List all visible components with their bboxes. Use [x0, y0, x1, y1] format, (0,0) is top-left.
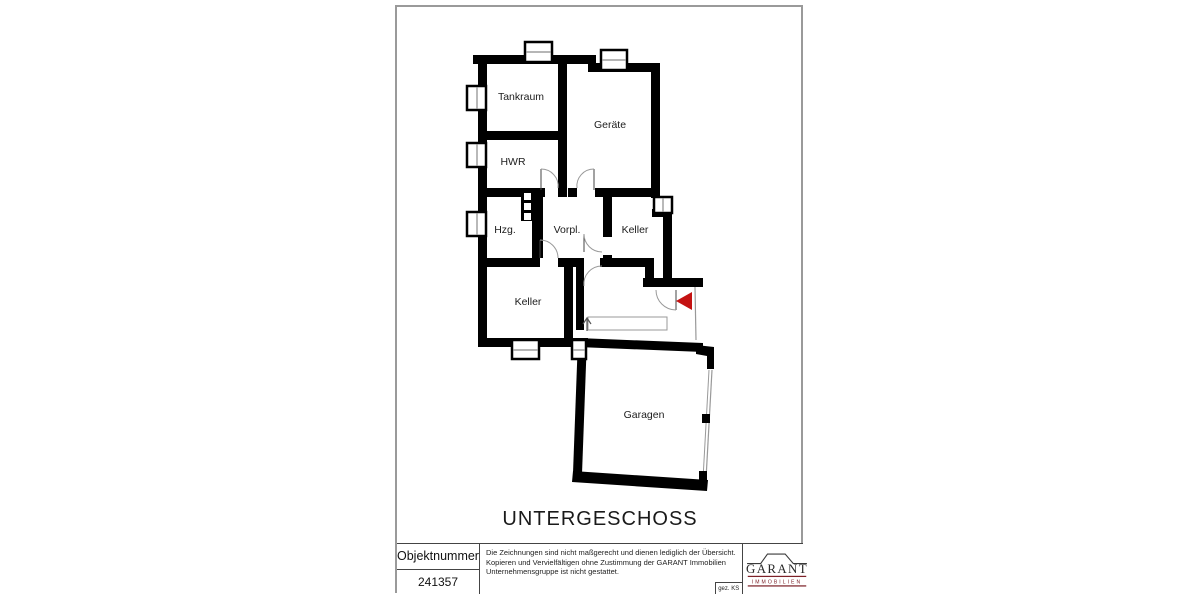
room-label-hwr: HWR: [500, 156, 525, 168]
room-label-tankraum: Tankraum: [498, 91, 544, 103]
room-label-keller-bottom: Keller: [515, 296, 542, 308]
garage-door-line: [706, 370, 712, 479]
title-block: Objektnummer 241357 Die Zeichnungen sind…: [397, 543, 803, 594]
logo-box: GARANT IMMOBILIEN: [743, 544, 811, 594]
disclaimer-line: Unternehmensgruppe ist nicht gestattet.: [486, 567, 736, 577]
disclaimer-box: Die Zeichnungen sind nicht maßgerecht un…: [480, 544, 743, 594]
object-number-label: Objektnummer: [397, 544, 479, 570]
chimney-symbol: [521, 190, 533, 221]
entrance-arrow-icon: [676, 292, 692, 310]
page-title: UNTERGESCHOSS: [395, 508, 805, 531]
entry-boundary-line: [695, 287, 696, 340]
room-label-hzg: Hzg.: [494, 224, 516, 236]
logo-name: GARANT: [746, 561, 808, 576]
garant-logo: GARANT IMMOBILIEN: [743, 548, 811, 590]
logo-subtitle: IMMOBILIEN: [752, 579, 802, 585]
logo-rule: [747, 576, 805, 577]
object-number-value: 241357: [397, 570, 479, 595]
room-label-garagen: Garagen: [624, 409, 665, 421]
room-label-vorpl: Vorpl.: [554, 224, 581, 236]
disclaimer-line: Die Zeichnungen sind nicht maßgerecht un…: [486, 548, 736, 558]
object-number-box: Objektnummer 241357: [397, 544, 480, 594]
disclaimer-line: Kopieren und Vervielfältigen ohne Zustim…: [486, 558, 736, 568]
logo-rule: [747, 585, 805, 586]
garage-door-line: [703, 370, 709, 479]
room-label-geraete: Geräte: [594, 119, 626, 131]
drawn-by-box: gez. KS: [715, 582, 742, 594]
entry-and-stairs: [583, 287, 696, 340]
room-label-keller-right: Keller: [622, 224, 649, 236]
staircase: [588, 317, 667, 330]
